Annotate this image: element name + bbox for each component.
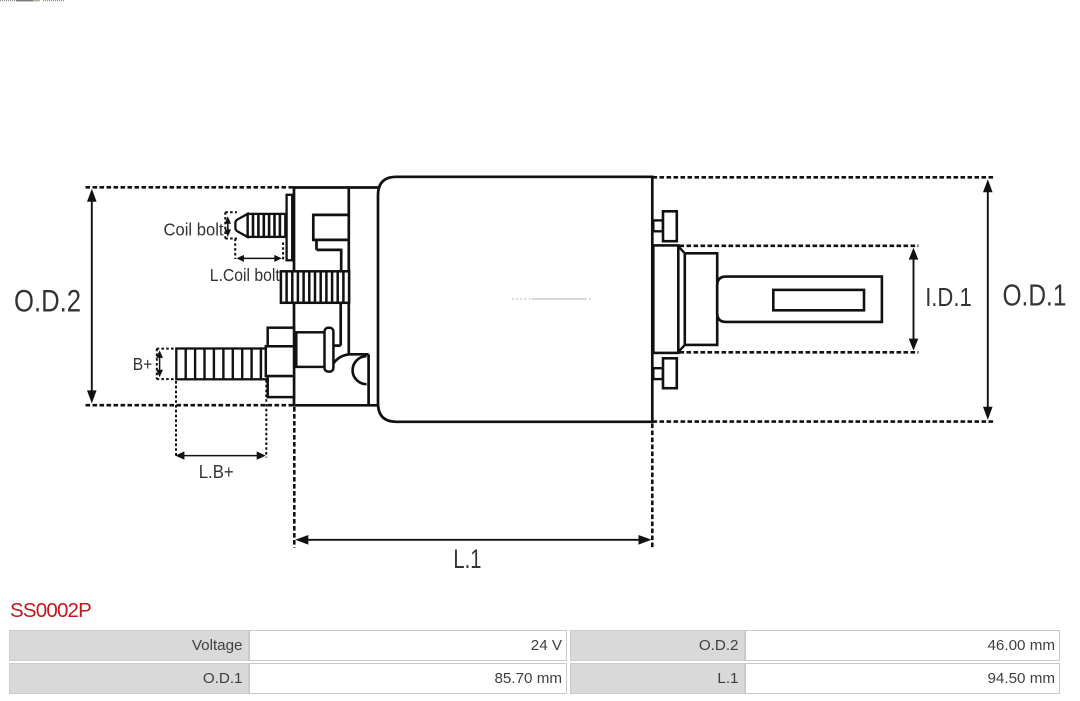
svg-text:L.Coil bolt: L.Coil bolt	[210, 265, 280, 285]
svg-text:I.D.1: I.D.1	[925, 284, 972, 312]
svg-text:Coil bolt: Coil bolt	[164, 220, 224, 240]
svg-text:L.1: L.1	[453, 544, 481, 574]
svg-text:O.D.2: O.D.2	[14, 282, 81, 318]
svg-text:O.D.1: O.D.1	[1003, 278, 1067, 312]
svg-text:B+: B+	[133, 354, 153, 374]
svg-text:L.B+: L.B+	[199, 462, 234, 482]
